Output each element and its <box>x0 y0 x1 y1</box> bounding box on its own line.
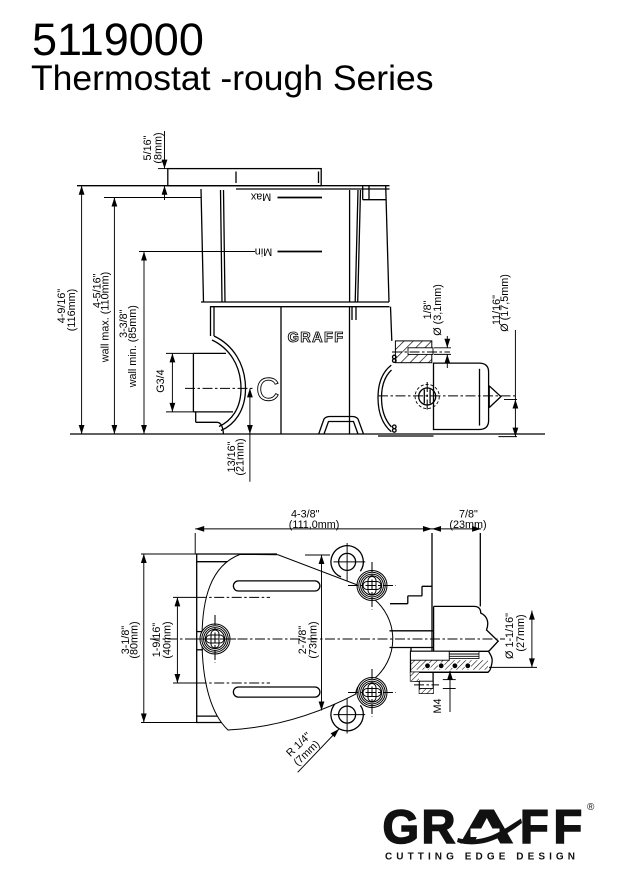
svg-text:(116mm): (116mm) <box>66 289 78 331</box>
svg-text:®: ® <box>587 802 595 813</box>
svg-text:Min: Min <box>255 246 272 258</box>
svg-text:(40mm): (40mm) <box>162 621 174 658</box>
svg-text:A: A <box>460 801 514 853</box>
svg-text:F: F <box>520 800 549 853</box>
svg-text:Ø (3,1mm): Ø (3,1mm) <box>432 284 444 336</box>
svg-text:Ø (17,5mm): Ø (17,5mm) <box>499 274 511 332</box>
svg-text:Max: Max <box>250 191 271 203</box>
svg-text:G3/4: G3/4 <box>155 369 167 392</box>
svg-text:M4: M4 <box>432 699 444 714</box>
svg-text:CUTTING EDGE DESIGN: CUTTING EDGE DESIGN <box>385 852 575 863</box>
svg-text:(80mm): (80mm) <box>129 621 141 658</box>
svg-text:R: R <box>422 800 456 853</box>
svg-text:(21mm): (21mm) <box>235 438 247 475</box>
svg-text:GRAFF: GRAFF <box>288 330 345 346</box>
svg-text:C: C <box>256 371 279 407</box>
svg-text:(8mm): (8mm) <box>153 132 165 163</box>
svg-text:wall max. (110mm): wall max. (110mm) <box>99 272 111 363</box>
svg-text:(73mm): (73mm) <box>308 621 320 658</box>
svg-text:(27mm): (27mm) <box>515 614 527 651</box>
svg-text:G: G <box>383 800 420 853</box>
svg-text:wall min. (85mm): wall min. (85mm) <box>127 305 139 388</box>
svg-text:F: F <box>554 800 583 853</box>
